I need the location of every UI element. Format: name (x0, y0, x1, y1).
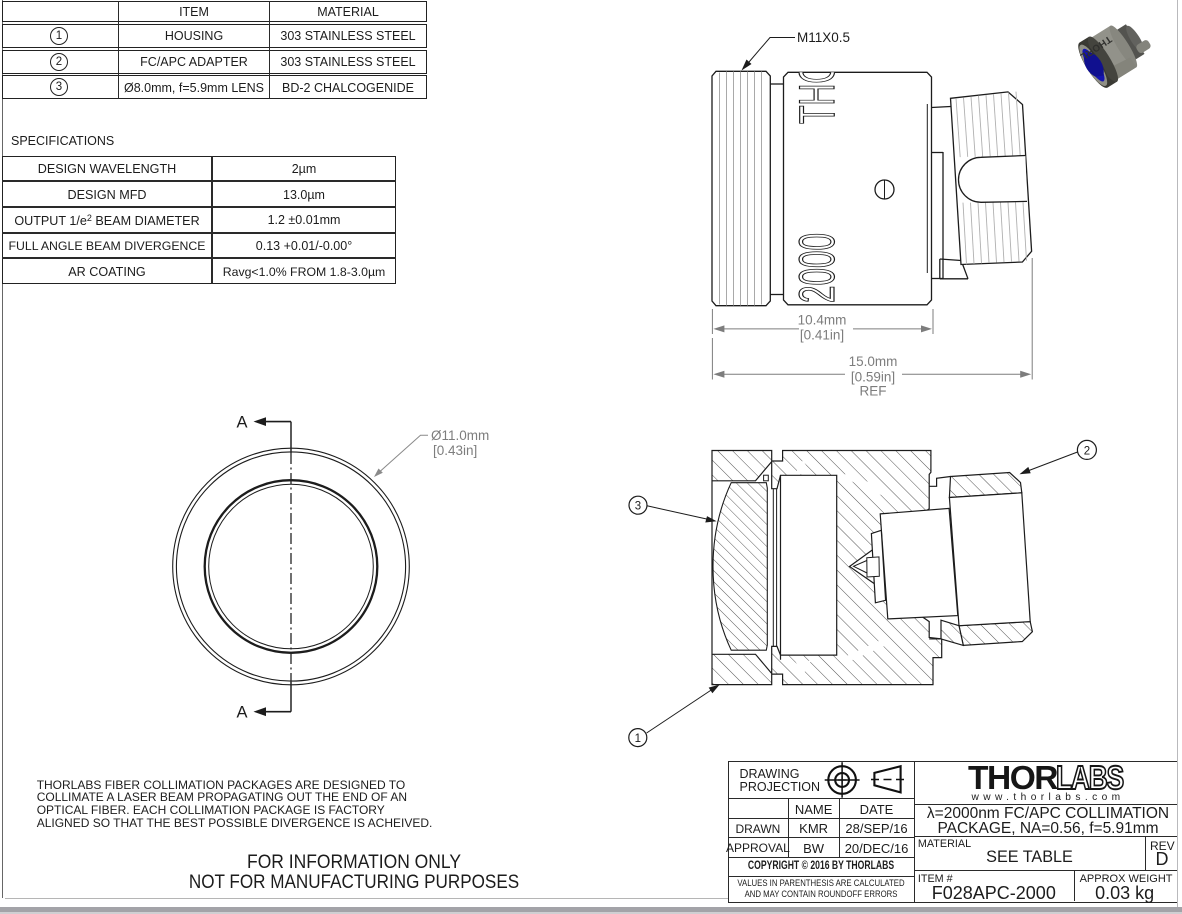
svg-text:2: 2 (1084, 445, 1090, 457)
svg-text:15.0mm: 15.0mm (849, 354, 898, 369)
svg-text:REF: REF (860, 384, 887, 399)
svg-text:3: 3 (635, 501, 641, 513)
svg-text:[0.59in]: [0.59in] (851, 370, 895, 385)
svg-text:1: 1 (635, 733, 641, 745)
svg-text:M11X0.5: M11X0.5 (797, 30, 850, 45)
svg-text:THO: THO (789, 60, 845, 124)
svg-text:2000: 2000 (789, 233, 845, 303)
svg-text:A: A (237, 414, 248, 432)
svg-text:A: A (237, 704, 248, 722)
svg-text:Ø11.0mm: Ø11.0mm (431, 428, 489, 443)
svg-text:[0.43in]: [0.43in] (433, 443, 477, 458)
svg-text:10.4mm: 10.4mm (798, 313, 847, 328)
svg-text:[0.41in]: [0.41in] (800, 328, 844, 343)
